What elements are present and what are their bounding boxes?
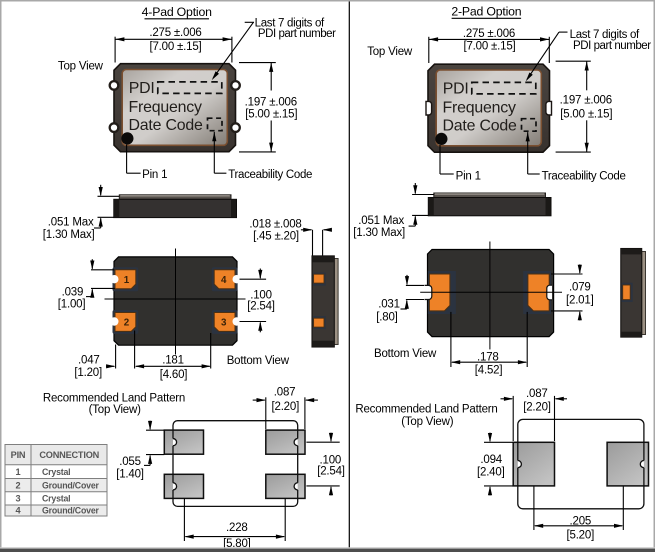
svg-text:.018 ±.008: .018 ±.008 [249,218,301,230]
svg-text:.055: .055 [119,456,141,468]
svg-text:Ground/Cover: Ground/Cover [42,506,100,516]
svg-text:[4.60]: [4.60] [160,369,188,381]
svg-text:[1.40]: [1.40] [116,468,144,480]
svg-text:[1.20]: [1.20] [74,367,102,379]
svg-text:.197 ±.006: .197 ±.006 [245,96,297,108]
svg-text:.047: .047 [78,354,100,366]
svg-text:.087: .087 [274,387,296,399]
svg-text:PDI: PDI [443,81,469,98]
svg-text:Bottom View: Bottom View [374,348,437,360]
svg-text:Traceability Code: Traceability Code [542,170,626,182]
svg-text:.094: .094 [480,454,502,466]
svg-text:Date Code: Date Code [129,117,204,134]
svg-text:PIN: PIN [11,450,26,460]
svg-text:Date Code: Date Code [443,118,518,135]
svg-text:Frequency: Frequency [129,99,203,116]
svg-text:2: 2 [16,480,21,490]
svg-text:Pin 1: Pin 1 [456,170,481,182]
svg-text:Bottom View: Bottom View [227,355,290,367]
svg-text:Top View: Top View [367,46,413,58]
svg-text:Crystal: Crystal [42,494,70,504]
svg-text:CONNECTION: CONNECTION [39,450,99,460]
svg-text:[.80]: [.80] [376,311,397,323]
svg-text:2-Pad Option: 2-Pad Option [451,5,521,19]
svg-text:.275 ±.006: .275 ±.006 [149,27,201,39]
svg-text:[5.20]: [5.20] [567,530,595,542]
svg-text:PDI part number: PDI part number [258,28,336,40]
svg-text:Crystal: Crystal [42,467,70,477]
svg-text:[2.54]: [2.54] [317,466,345,478]
svg-text:Traceability Code: Traceability Code [228,169,312,181]
svg-text:1: 1 [124,275,130,286]
svg-text:[5.00 ±.15]: [5.00 ±.15] [560,108,612,120]
svg-text:.228: .228 [226,522,248,534]
svg-text:(Top View): (Top View) [401,416,453,428]
svg-text:[.45 ±.20]: [.45 ±.20] [253,231,299,243]
svg-text:Recommended Land Pattern: Recommended Land Pattern [355,404,497,416]
svg-text:(Top View): (Top View) [89,404,141,416]
svg-text:[2.01]: [2.01] [566,294,594,306]
svg-text:4: 4 [221,275,227,286]
svg-text:.039: .039 [62,287,84,299]
svg-text:.197 ±.006: .197 ±.006 [560,94,612,106]
svg-text:[1.00]: [1.00] [58,299,86,311]
svg-text:.051 Max: .051 Max [358,215,404,227]
svg-text:[5.00 ±.15]: [5.00 ±.15] [245,108,297,120]
svg-text:.079: .079 [569,281,591,293]
svg-text:[4.52]: [4.52] [475,365,503,377]
svg-text:[2.40]: [2.40] [477,466,505,478]
svg-text:Recommended Land Pattern: Recommended Land Pattern [43,392,185,404]
svg-text:2: 2 [124,318,130,329]
svg-text:[2.54]: [2.54] [247,300,275,312]
svg-text:Frequency: Frequency [443,99,517,116]
svg-text:3: 3 [16,494,21,504]
svg-text:.181: .181 [162,354,184,366]
svg-text:PDI part number: PDI part number [573,40,651,52]
svg-text:3: 3 [221,318,227,329]
svg-text:4-Pad Option: 4-Pad Option [142,5,212,19]
svg-text:.178: .178 [477,352,499,364]
svg-text:1: 1 [16,467,21,477]
svg-text:[1.30 Max]: [1.30 Max] [43,229,95,241]
svg-text:.051 Max: .051 Max [48,217,94,229]
svg-text:[2.20]: [2.20] [523,401,551,413]
svg-text:PDI: PDI [129,80,155,97]
svg-text:.275 ±.006: .275 ±.006 [463,28,515,40]
svg-text:[7.00 ±.15]: [7.00 ±.15] [149,41,201,53]
svg-text:Last 7 digits of: Last 7 digits of [570,29,640,41]
svg-text:[2.20]: [2.20] [272,401,300,413]
svg-text:[7.00 ±.15]: [7.00 ±.15] [463,40,515,52]
svg-text:Pin 1: Pin 1 [142,169,167,181]
svg-text:[1.30 Max]: [1.30 Max] [353,227,405,239]
svg-text:Top View: Top View [58,61,104,73]
svg-text:.205: .205 [570,516,592,528]
svg-text:Ground/Cover: Ground/Cover [42,480,100,490]
svg-text:.087: .087 [526,388,548,400]
svg-text:.031: .031 [378,298,400,310]
